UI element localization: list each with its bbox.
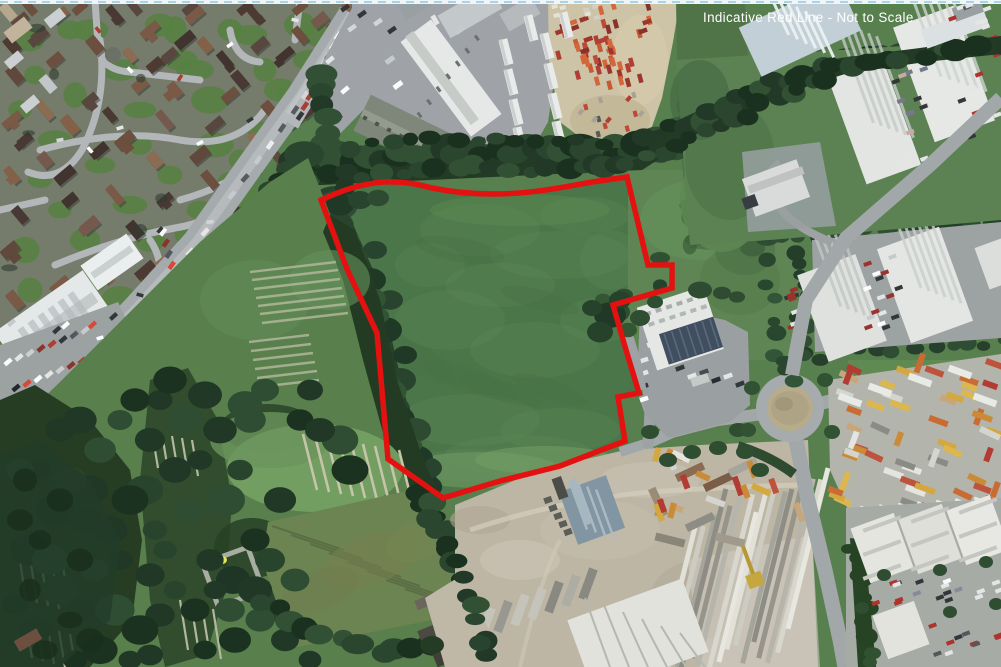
svg-text:Indicative Red Line - Not to S: Indicative Red Line - Not to Scale [703,10,914,25]
